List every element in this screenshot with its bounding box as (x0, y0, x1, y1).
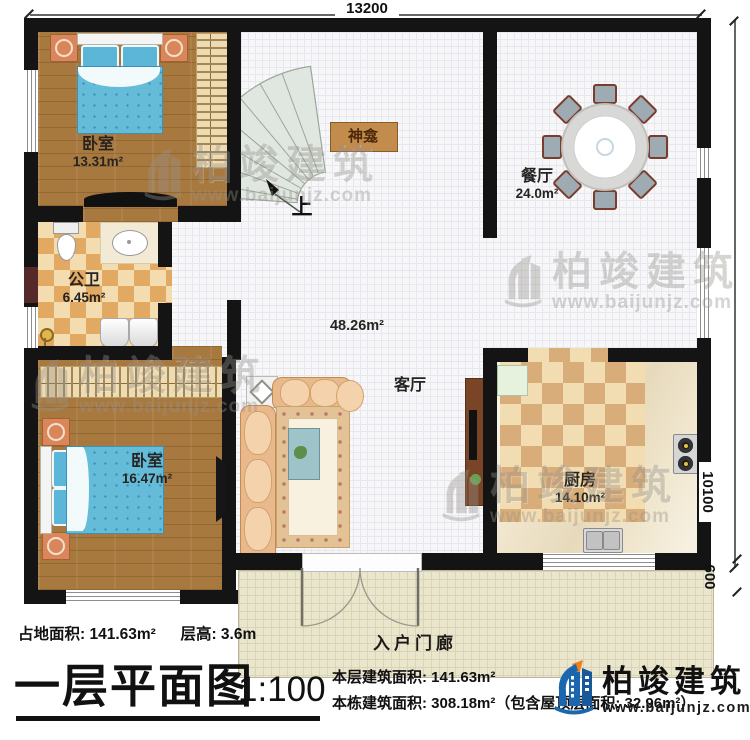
dim-tick-600-bottom (732, 587, 742, 597)
bedroom2-bed-headboard (40, 446, 52, 534)
brand-logo-icon (550, 658, 598, 716)
kitchen-sink-basin-right (603, 531, 620, 550)
land-area-text: 占地面积: 141.63m² (18, 626, 156, 643)
bedroom2-wardrobe (40, 366, 224, 398)
washer-right (129, 318, 158, 348)
bedroom1-bed-headboard (77, 33, 163, 45)
dim-line-right (734, 20, 736, 568)
sofa-arm-right (336, 380, 364, 412)
kitchen-area: 14.10m² (542, 490, 618, 506)
kitchen-bottom-window (543, 553, 655, 570)
stove-flame-dot-top (684, 444, 688, 448)
bedroom2-door-threshold (172, 346, 222, 360)
wall-kitchen-top-left (497, 348, 528, 362)
dining-right-window (697, 248, 711, 338)
kitchen-sink-basin-left (586, 531, 603, 550)
bedroom2-tv (216, 456, 225, 522)
living-area-label: 48.26m² (315, 318, 399, 335)
brand-url: www.baijunjz.com (602, 698, 750, 718)
bedroom2-name: 卧室 (105, 453, 189, 471)
wall-bedroom1-right (227, 18, 241, 220)
land-area-line: 占地面积: 141.63m² 层高: 3.6m (18, 622, 256, 644)
kitchen-door-threshold (528, 348, 608, 362)
floor-height-text: 层高: 3.6m (180, 626, 256, 643)
wall-top (24, 18, 711, 32)
sofa-cushion-4 (244, 459, 272, 503)
wall-bathroom-bedroom2 (24, 346, 172, 360)
stair-up-label: 上 (289, 196, 315, 220)
sofa-cushion-3 (244, 411, 272, 455)
bedroom2-nightstand-bottom (42, 532, 70, 560)
bathroom-name: 公卫 (44, 272, 124, 290)
bedroom1-nightstand-left (50, 34, 78, 62)
floor-area-text: 本层建筑面积: 141.63m² (332, 666, 495, 687)
bedroom2-area: 16.47m² (105, 471, 189, 487)
dining-name: 餐厅 (498, 168, 576, 186)
bedroom1-door-threshold (83, 206, 178, 222)
washer-left (100, 318, 129, 348)
stove-flame-dot-bottom (684, 462, 688, 466)
floor-drain-icon (40, 328, 54, 342)
wall-bedroom1-bottom-left (24, 206, 83, 222)
toilet-tank (53, 222, 79, 234)
plan-title: 一层平面图 (14, 650, 254, 716)
wall-bathroom-right-upper (158, 222, 172, 267)
bathroom-left-window (24, 307, 38, 348)
kitchen-name: 厨房 (542, 472, 618, 490)
fridge (497, 365, 528, 396)
console-plant-icon (470, 474, 481, 485)
sofa-cushion-1 (280, 379, 310, 407)
porch-label: 入户门廊 (345, 634, 485, 654)
bedroom1-door-swing (84, 192, 177, 207)
wall-dining-left (483, 18, 497, 238)
wall-stub-corridor (227, 300, 241, 360)
bedroom2-bed-sheet-fold (67, 447, 89, 531)
sofa-cushion-5 (244, 507, 272, 551)
wall-living-bottom-right (420, 553, 497, 570)
entry-double-door (296, 568, 424, 634)
wall-kitchen-top-right (608, 348, 711, 362)
dim-label-top: 13200 (335, 0, 399, 17)
brand-name: 柏竣建筑 (602, 666, 746, 697)
wall-living-bottom-left (222, 553, 302, 570)
bathroom-area: 6.45m² (44, 290, 124, 306)
bedroom1-wardrobe (196, 33, 228, 168)
bedroom1-area: 13.31m² (58, 154, 138, 170)
dining-area: 24.0m² (498, 186, 576, 202)
plan-scale: 1:100 (238, 670, 326, 710)
staircase (241, 32, 333, 217)
room-label-bedroom1: 卧室 13.31m² (58, 136, 138, 170)
dim-label-porch: 600 (701, 558, 718, 596)
bedroom1-nightstand-right (160, 34, 188, 62)
bedroom1-name: 卧室 (58, 136, 138, 154)
bathroom-left-small-window (24, 267, 38, 303)
wall-kitchen-left (483, 348, 497, 570)
dim-label-right: 10100 (699, 462, 716, 522)
living-tv (469, 410, 477, 460)
bedroom1-left-window (24, 70, 38, 152)
title-underline (16, 716, 320, 721)
bedroom2-bottom-window (66, 590, 180, 604)
room-label-kitchen: 厨房 14.10m² (542, 472, 618, 506)
bedroom2-nightstand-top (42, 418, 70, 446)
room-label-bathroom: 公卫 6.45m² (44, 272, 124, 306)
floor-plan-canvas: 上 神龛 (0, 0, 750, 740)
room-label-dining: 餐厅 24.0m² (498, 168, 576, 202)
living-name-label: 客厅 (374, 377, 446, 395)
shrine-label: 神龛 (330, 128, 396, 145)
bathroom-sink-drain (127, 240, 131, 244)
dining-right-window-small (697, 148, 711, 178)
room-label-bedroom2: 卧室 16.47m² (105, 453, 189, 487)
